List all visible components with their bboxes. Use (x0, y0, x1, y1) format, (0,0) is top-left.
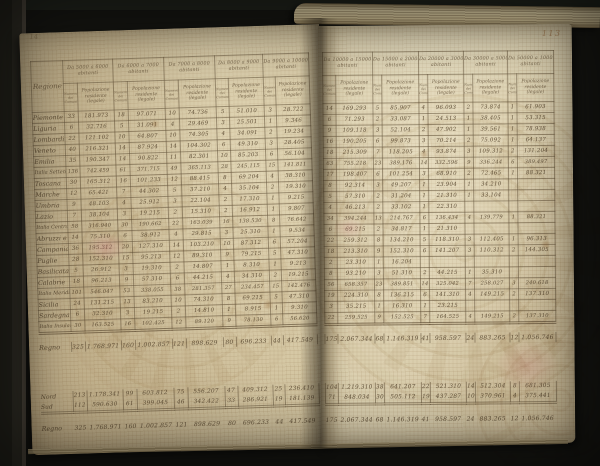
population-cell: 35.310 (474, 267, 509, 278)
count-cell: 22 (65, 133, 79, 144)
count-cell: 2 (510, 289, 519, 300)
count-cell: 7 (373, 147, 382, 158)
count-cell: 68 (375, 333, 384, 343)
count-subheader: NumerodeiComuni (63, 83, 78, 111)
population-cell: 681.305 (519, 381, 556, 391)
count-cell: 22 (421, 382, 430, 392)
count-cell (509, 256, 518, 267)
count-cell: 6 (118, 230, 132, 241)
count-cell: 2 (508, 146, 517, 157)
count-cell: 56 (324, 279, 337, 290)
count-cell: 2 (168, 207, 182, 218)
population-cell (518, 266, 555, 277)
count-subheader: NumerodeiComuni (508, 74, 517, 102)
ledger-bottom-total-left: Regno3251.768.9711601.002.857121898.6298… (41, 415, 319, 434)
count-cell: 36 (68, 243, 82, 254)
population-cell: 137.310 (519, 288, 556, 299)
population-subheader: Popolazioneresidente(legale) (473, 74, 508, 102)
page-number-right: 113 (542, 29, 562, 38)
ledger-bottom-total-right: 1752.067.344681.146.31941958.59724883.26… (325, 413, 556, 425)
count-cell: 4 (510, 391, 519, 403)
count-cell: 18 (324, 246, 337, 257)
count-cell: 7 (421, 312, 430, 324)
count-cell: 16 (323, 136, 336, 147)
population-subheader: Popolazioneresidente(legale) (127, 80, 165, 109)
column-group-header: Da 8000 a 9000abitanti (215, 54, 264, 78)
count-cell: 6 (268, 237, 280, 248)
count-cell: 2 (171, 306, 185, 317)
population-cell: 1.146.319 (384, 414, 421, 424)
count-cell: 121 (172, 338, 186, 348)
count-cell: 41 (421, 414, 430, 424)
population-cell: 375.441 (519, 391, 556, 403)
population-cell: 99.873 (382, 136, 419, 147)
count-cell: 5 (373, 103, 382, 114)
count-cell: 12 (67, 188, 81, 199)
column-group-header: Da 50000 a 100000abitanti (508, 50, 554, 73)
count-cell: 9 (223, 315, 236, 327)
count-cell: 1 (464, 124, 473, 135)
population-cell: 2.067.344 (338, 415, 375, 425)
count-cell: 14 (466, 382, 475, 392)
count-cell: 9 (323, 125, 336, 136)
count-cell: 4 (419, 147, 428, 158)
count-cell: 1 (509, 212, 518, 223)
count-cell: 3 (220, 227, 233, 238)
count-cell: 9 (67, 199, 81, 210)
population-cell: 112.405 (474, 234, 509, 245)
population-cell: 883.265 (475, 332, 510, 342)
count-cell: 2 (267, 182, 279, 193)
population-cell (429, 256, 465, 267)
population-cell: 47.902 (428, 124, 464, 135)
count-cell: 2 (219, 194, 232, 205)
count-cell: 14 (419, 158, 428, 169)
count-cell: 24 (70, 298, 84, 309)
count-cell: 1 (508, 135, 517, 146)
column-group-header: Da 20000 a 30000abitanti (418, 51, 463, 74)
count-cell: 2 (510, 311, 519, 323)
count-cell (465, 223, 474, 234)
count-cell: 99 (122, 389, 136, 399)
column-group-header: Da 15000 a 20000abitanti (372, 52, 418, 75)
count-cell: 9 (119, 274, 133, 285)
count-cell: 14 (116, 154, 130, 165)
ledger-table-right: Da 10000 a 15000abitantiDa 15000 a 20000… (322, 50, 556, 326)
population-subheader: Popolazioneresidente(legale) (77, 82, 114, 111)
ledger-mini-left: Nord2131.178.34199603.81275556.20747409.… (40, 383, 319, 415)
count-cell: 3 (510, 278, 519, 289)
count-subheader: NumerodeiComuni (215, 78, 229, 106)
population-cell (518, 200, 555, 211)
count-cell: 49 (167, 163, 181, 174)
population-cell: 198.407 (336, 169, 373, 180)
count-cell: 1 (465, 179, 474, 190)
count-cell: 5 (69, 265, 83, 276)
population-cell: 23.904 (429, 179, 465, 190)
population-cell: 696.233 (236, 336, 271, 347)
count-cell: 58 (68, 221, 82, 232)
count-cell: 1 (221, 260, 234, 271)
population-cell: 417.549 (285, 415, 319, 426)
population-cell (475, 300, 510, 311)
count-cell: 2 (265, 127, 277, 138)
count-cell: 30 (118, 219, 132, 230)
ledger-page-left: 14 RegioneDa 5000 a 6000abitantiDa 6000 … (19, 24, 332, 455)
count-cell: 22 (169, 218, 183, 229)
population-cell: 1.768.971 (87, 421, 123, 432)
count-cell: 1 (420, 191, 429, 202)
population-cell: 96.093 (428, 102, 464, 113)
population-cell (474, 256, 509, 267)
count-cell: 20 (118, 241, 132, 252)
scanned-ledger-photo: 14 RegioneDa 5000 a 6000abitantiDa 6000 … (0, 0, 600, 466)
count-cell: 19 (421, 392, 430, 404)
count-cell: 101 (70, 287, 84, 298)
count-cell: 30 (66, 177, 80, 188)
population-cell: 141.310 (430, 289, 466, 300)
count-cell: 14 (115, 143, 129, 154)
ledger-table-left: RegioneDa 5000 a 6000abitantiDa 6000 a 7… (30, 52, 318, 335)
count-cell: 3 (464, 146, 473, 157)
count-cell (510, 300, 519, 311)
count-cell (509, 179, 518, 190)
count-subheader: NumerodeiComuni (323, 75, 336, 103)
population-cell: 958.597 (430, 414, 466, 424)
count-cell: 6 (508, 157, 517, 168)
population-cell: 136.215 (384, 290, 421, 301)
count-cell: 5 (420, 235, 429, 246)
count-cell: 3 (465, 234, 474, 245)
count-cell: 12 (172, 317, 186, 329)
population-cell: 641.207 (384, 382, 421, 392)
count-cell: 44 (273, 416, 285, 426)
count-cell: 213 (72, 391, 86, 401)
count-cell: 1 (420, 224, 429, 235)
count-cell: 325 (73, 422, 87, 432)
count-cell: 9 (375, 312, 384, 324)
population-cell: 34.817 (383, 224, 420, 235)
population-cell: 1.056.746 (519, 332, 556, 342)
population-cell: 53.315 (517, 112, 554, 123)
population-cell: 1.002.857 (135, 339, 172, 350)
population-cell: 61.903 (517, 101, 554, 112)
count-subheader: NumerodeiComuni (164, 80, 179, 108)
count-cell: 1 (508, 102, 517, 113)
column-group-header: Da 9000 a 10000abitanti (263, 53, 310, 77)
population-cell: 1.219.310 (338, 383, 375, 393)
count-cell: 22 (324, 235, 337, 246)
count-cell: 17 (323, 169, 336, 180)
population-cell: 33.102 (383, 202, 420, 213)
count-subheader: NumerodeiComuni (419, 75, 428, 103)
population-cell: 38.405 (473, 113, 508, 124)
count-cell: 3 (373, 125, 382, 136)
population-cell: 88.321 (518, 167, 555, 178)
population-cell: 149.215 (475, 311, 510, 323)
corner-label: Regione (31, 61, 65, 113)
count-cell: 75 (173, 387, 187, 397)
count-cell: 112 (73, 400, 87, 412)
count-cell: 18 (69, 276, 83, 287)
population-cell: 342.422 (188, 396, 225, 409)
row-label: Regno (41, 423, 73, 434)
population-cell: 49.207 (383, 180, 420, 191)
population-subheader: Popolazioneresidente(legale) (428, 74, 464, 102)
column-group-header: Da 30000 a 50000abitanti (464, 51, 508, 74)
count-cell: 4 (266, 171, 278, 182)
count-cell: 6 (420, 213, 429, 224)
population-cell: 137.310 (519, 310, 556, 322)
count-cell: 23 (374, 279, 383, 290)
population-cell: 1.768.971 (85, 340, 121, 351)
count-cell: 1 (508, 113, 517, 124)
population-cell: 78.938 (517, 123, 554, 134)
count-cell: 13 (120, 296, 134, 307)
population-cell: 437.287 (430, 392, 466, 404)
count-cell: 1 (420, 180, 429, 191)
population-cell: 78.130 (236, 314, 271, 327)
population-subheader: Popolazioneresidente(legale) (336, 75, 373, 103)
count-cell: 2 (509, 245, 518, 256)
count-cell: 1 (270, 303, 282, 314)
population-cell: 224.310 (338, 290, 375, 301)
population-cell: 149.215 (475, 289, 510, 300)
count-cell: 8 (324, 268, 337, 279)
population-cell: 696.233 (238, 417, 273, 428)
count-cell: 2 (464, 102, 473, 113)
count-cell: 121 (174, 419, 188, 429)
population-cell: 163.525 (85, 319, 121, 332)
count-cell: 46 (174, 397, 188, 409)
count-cell: 7 (67, 210, 81, 221)
count-cell (420, 257, 429, 268)
population-cell: 118.205 (382, 147, 419, 158)
count-cell: 3 (117, 209, 131, 220)
population-cell: 505.112 (384, 392, 421, 404)
population-cell: 33.104 (474, 190, 509, 201)
count-cell: 175 (325, 334, 338, 344)
count-cell: 5 (270, 292, 282, 303)
population-cell (518, 255, 555, 266)
count-cell: 11 (167, 152, 181, 163)
count-cell: 18 (114, 110, 128, 121)
count-cell: 3 (325, 301, 338, 312)
count-cell: 136 (66, 166, 80, 177)
count-cell: 1 (267, 193, 279, 204)
population-cell: 389.851 (383, 279, 420, 290)
population-cell: 399.045 (137, 398, 174, 411)
population-cell: 21.310 (429, 223, 465, 234)
count-cell: 30 (375, 392, 384, 404)
count-cell: 47 (224, 386, 237, 396)
population-cell: 39.561 (473, 124, 508, 135)
count-cell: 8 (218, 172, 231, 183)
population-cell: 898.629 (186, 337, 223, 348)
count-cell: 22 (325, 312, 338, 324)
population-cell: 164.525 (430, 311, 466, 323)
count-cell: 4 (324, 202, 337, 213)
count-cell: 2 (374, 191, 383, 202)
population-cell: 389.176 (382, 158, 419, 169)
population-cell (519, 299, 556, 310)
count-cell: 4 (221, 271, 234, 282)
count-cell: 2 (464, 135, 473, 146)
count-cell: 14 (68, 232, 82, 243)
count-cell: 2 (374, 202, 383, 213)
population-cell: 325.042 (429, 278, 465, 289)
count-cell: 10 (218, 150, 231, 161)
population-cell: 69.215 (337, 224, 374, 235)
count-cell: 4 (117, 198, 131, 209)
count-cell: 325 (71, 342, 85, 352)
count-cell: 38 (375, 382, 384, 392)
count-cell: 160 (123, 421, 137, 431)
population-cell: 73.874 (473, 102, 508, 113)
count-cell: 40 (65, 144, 79, 155)
count-cell: 2 (324, 257, 337, 268)
count-cell: 4 (466, 289, 475, 300)
population-cell: 70.214 (428, 135, 464, 146)
count-cell: 12 (510, 332, 519, 342)
count-cell: 12 (170, 251, 184, 262)
count-cell: 6 (421, 290, 430, 301)
count-cell: 1 (268, 226, 280, 237)
count-cell: 3 (216, 117, 229, 128)
count-cell: 5 (115, 121, 129, 132)
count-cell: 3 (374, 268, 383, 279)
count-cell: 44 (271, 335, 283, 345)
count-cell: 1 (464, 113, 473, 124)
population-cell: 215.309 (336, 147, 373, 158)
population-subheader: Popolazioneresidente(legale) (517, 73, 554, 101)
population-cell: 89.120 (186, 316, 223, 329)
population-cell: 22.310 (429, 201, 465, 212)
population-cell: 21.310 (429, 190, 465, 201)
count-cell: 25 (272, 384, 284, 394)
population-cell: 389.497 (517, 156, 554, 167)
population-cell: 56.620 (283, 313, 317, 326)
population-cell: 139.779 (474, 212, 509, 223)
ledger-page-right: 113 Da 10000 a 15000abitantiDa 15000 a 2… (318, 24, 576, 445)
count-cell: 3 (265, 138, 277, 149)
population-cell: 109.312 (473, 146, 508, 157)
column-group-header: Da 10000 a 15000abitanti (322, 52, 372, 75)
ledger-mini-right: 1041.219.31038641.20722521.31014512.3048… (325, 381, 557, 406)
count-cell: 3 (119, 263, 133, 274)
population-cell: 85.907 (382, 103, 419, 114)
population-cell: 1.056.746 (519, 413, 556, 423)
population-cell: 658.357 (337, 279, 374, 290)
population-cell: 72.465 (474, 168, 509, 179)
population-cell: 118.310 (429, 234, 465, 245)
population-cell: 332.596 (428, 157, 464, 168)
count-cell: 10 (115, 132, 129, 143)
count-cell: 4 (169, 229, 183, 240)
count-cell: 19 (325, 290, 338, 301)
population-cell: 590.630 (87, 399, 123, 412)
count-cell: 14 (420, 279, 429, 290)
population-cell: 240.618 (519, 277, 556, 288)
count-cell: 9 (464, 157, 473, 168)
population-cell: 23.310 (337, 257, 374, 268)
population-cell: 134.210 (383, 235, 420, 246)
population-cell: 958.597 (430, 333, 466, 343)
count-cell: 2 (420, 268, 429, 279)
count-cell: 4 (217, 128, 230, 139)
population-cell: 16.204 (383, 257, 420, 268)
population-cell: 131.204 (517, 145, 554, 156)
row-label: Italia Insulare (39, 320, 71, 333)
population-cell: 848.034 (338, 393, 375, 405)
population-cell: 1.002.857 (137, 420, 174, 431)
count-cell: 23 (373, 158, 382, 169)
count-cell: 4 (465, 212, 474, 223)
count-subheader: NumerodeiComuni (263, 77, 276, 105)
count-cell: 28 (69, 254, 83, 265)
count-cell: 24 (466, 333, 475, 343)
count-cell: 1 (509, 168, 518, 179)
count-subheader: NumerodeiComuni (113, 82, 128, 110)
population-cell: 51.310 (383, 268, 420, 279)
ledger-total-left: Regno3251.768.9711601.002.857121898.6298… (39, 334, 318, 353)
count-cell: 6 (266, 149, 278, 160)
population-cell: 102.425 (135, 317, 172, 330)
population-cell (474, 201, 509, 212)
population-subheader: Popolazioneresidente(legale) (275, 76, 310, 105)
count-cell: 24 (466, 414, 475, 424)
count-cell: 104 (325, 383, 338, 393)
population-subheader: Popolazioneresidente(legale) (382, 75, 419, 103)
population-cell: 259.312 (337, 235, 374, 246)
page-number-left: 14 (29, 33, 38, 41)
count-cell: 7 (465, 278, 474, 289)
population-cell: 417.549 (283, 334, 317, 345)
count-cell: 63 (323, 158, 336, 169)
count-cell: 3 (168, 196, 182, 207)
count-cell: 8 (375, 290, 384, 301)
population-cell: 88.321 (518, 211, 555, 222)
population-cell: 181.139 (285, 393, 319, 406)
count-cell: 1 (508, 124, 517, 135)
count-cell: 2 (373, 114, 382, 125)
count-cell: 14 (169, 240, 183, 251)
population-cell: 259.525 (338, 312, 375, 324)
population-cell: 2.067.344 (338, 334, 375, 344)
population-cell: 46.213 (337, 202, 374, 213)
count-cell: 30 (71, 320, 85, 332)
count-cell: 14 (166, 141, 180, 152)
count-cell: 6 (65, 122, 79, 133)
count-cell: 1 (267, 204, 279, 215)
count-cell: 6 (374, 169, 383, 180)
count-cell: 7 (117, 187, 131, 198)
count-cell (509, 190, 518, 201)
population-cell: 96.313 (518, 233, 555, 244)
population-subheader: Popolazioneresidente(legale) (178, 79, 216, 108)
count-cell: 6 (323, 114, 336, 125)
count-cell: 1 (465, 190, 474, 201)
count-cell: 1 (374, 257, 383, 268)
count-cell: 34 (324, 213, 337, 224)
population-cell: 213.310 (337, 246, 374, 257)
count-cell: 2 (170, 262, 184, 273)
row-label: Sud (41, 401, 73, 413)
count-cell: 3 (120, 307, 134, 318)
population-cell: 35.215 (338, 301, 375, 312)
count-cell: 12 (167, 174, 181, 185)
count-cell: 33 (225, 396, 238, 408)
